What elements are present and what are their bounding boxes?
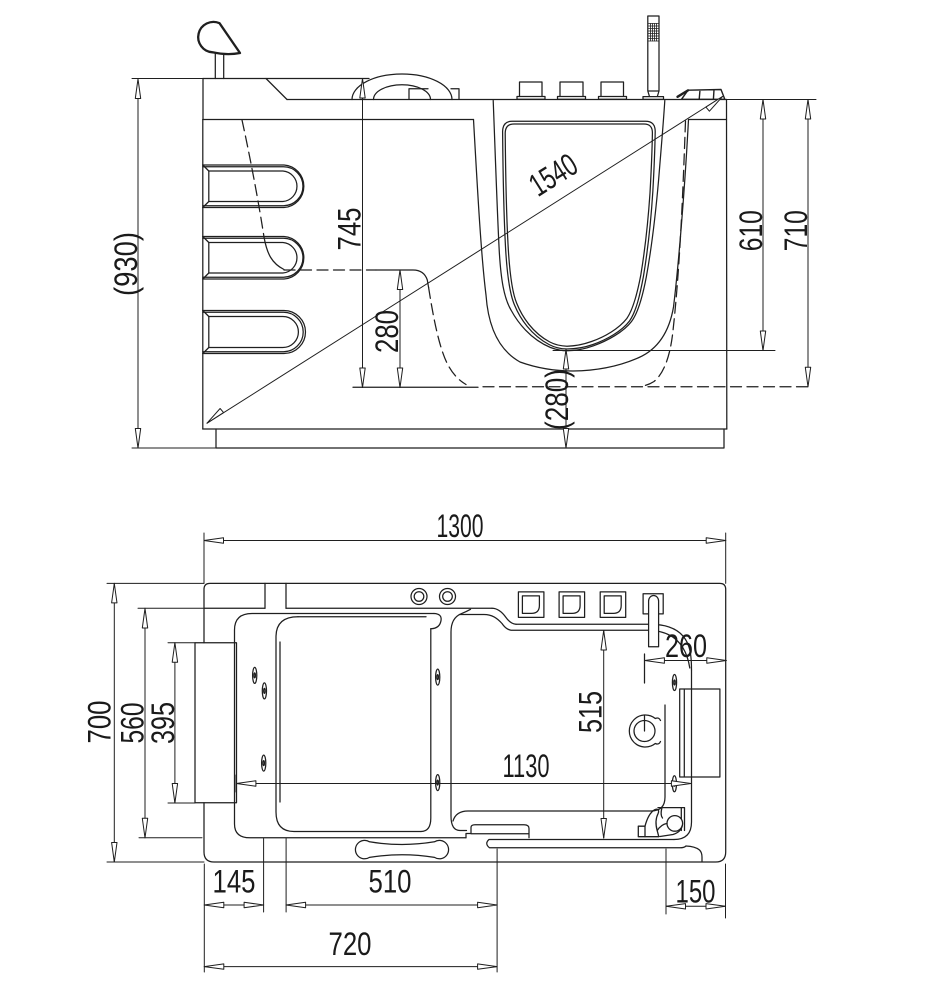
svg-text:145: 145 xyxy=(213,864,256,900)
svg-text:1300: 1300 xyxy=(437,508,484,544)
svg-text:(930): (930) xyxy=(108,232,144,296)
svg-text:745: 745 xyxy=(332,208,368,251)
svg-text:700: 700 xyxy=(82,701,118,744)
svg-text:(280): (280) xyxy=(539,369,575,430)
svg-text:395: 395 xyxy=(145,702,181,744)
svg-text:260: 260 xyxy=(665,628,707,664)
svg-text:280: 280 xyxy=(369,310,405,353)
svg-text:510: 510 xyxy=(369,864,412,900)
svg-text:720: 720 xyxy=(329,926,372,962)
svg-text:1130: 1130 xyxy=(503,748,550,784)
svg-text:710: 710 xyxy=(778,210,814,251)
svg-text:150: 150 xyxy=(676,874,716,910)
svg-text:610: 610 xyxy=(733,210,769,251)
svg-text:515: 515 xyxy=(573,691,609,733)
